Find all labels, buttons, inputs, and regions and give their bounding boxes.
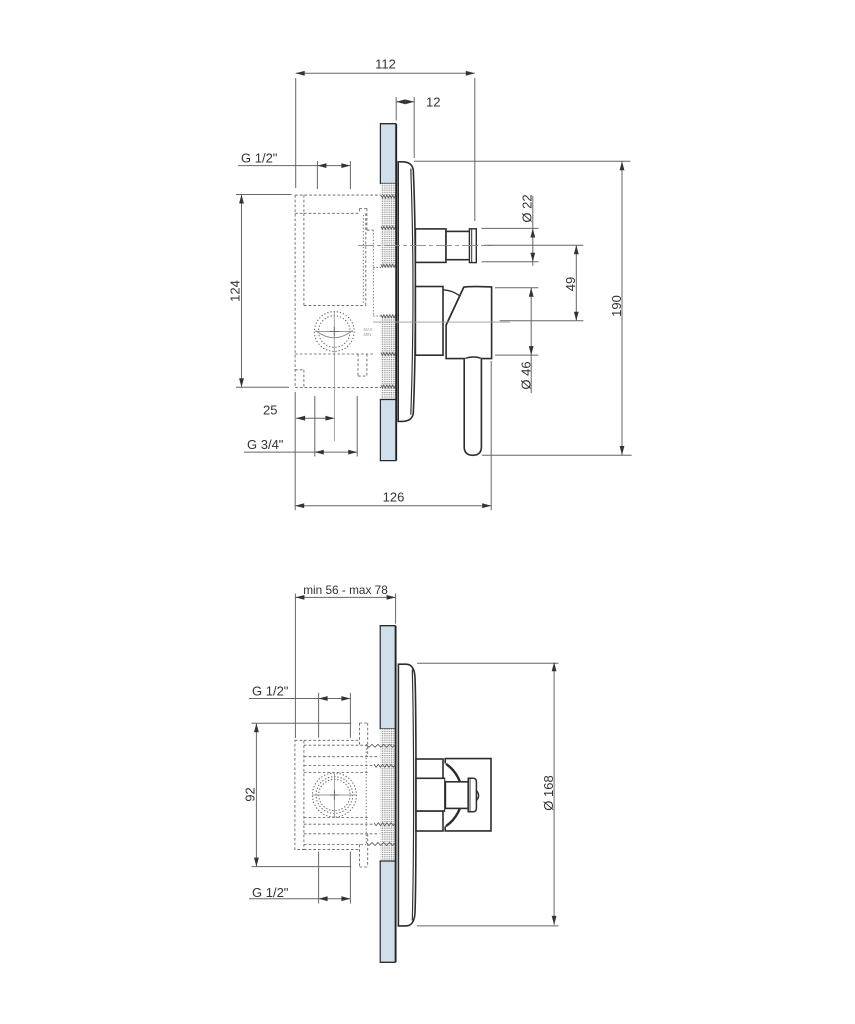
svg-text:G 1/2": G 1/2"	[252, 684, 289, 699]
svg-text:126: 126	[383, 490, 405, 505]
svg-text:Ø 22: Ø 22	[520, 194, 535, 222]
svg-text:G 3/4": G 3/4"	[247, 437, 284, 452]
svg-text:124: 124	[228, 280, 243, 302]
svg-text:Ø 46: Ø 46	[519, 361, 534, 389]
svg-text:G 1/2": G 1/2"	[241, 151, 278, 166]
svg-text:G 1/2": G 1/2"	[252, 885, 289, 900]
svg-text:190: 190	[609, 295, 624, 317]
svg-text:49: 49	[563, 277, 578, 291]
svg-text:25: 25	[263, 403, 277, 418]
svg-text:Ø 168: Ø 168	[541, 775, 556, 810]
svg-text:112: 112	[375, 57, 396, 72]
svg-text:min 56 - max 78: min 56 - max 78	[303, 583, 388, 597]
svg-text:MIN: MIN	[364, 332, 372, 337]
svg-text:12: 12	[426, 94, 440, 109]
svg-text:92: 92	[243, 787, 258, 801]
